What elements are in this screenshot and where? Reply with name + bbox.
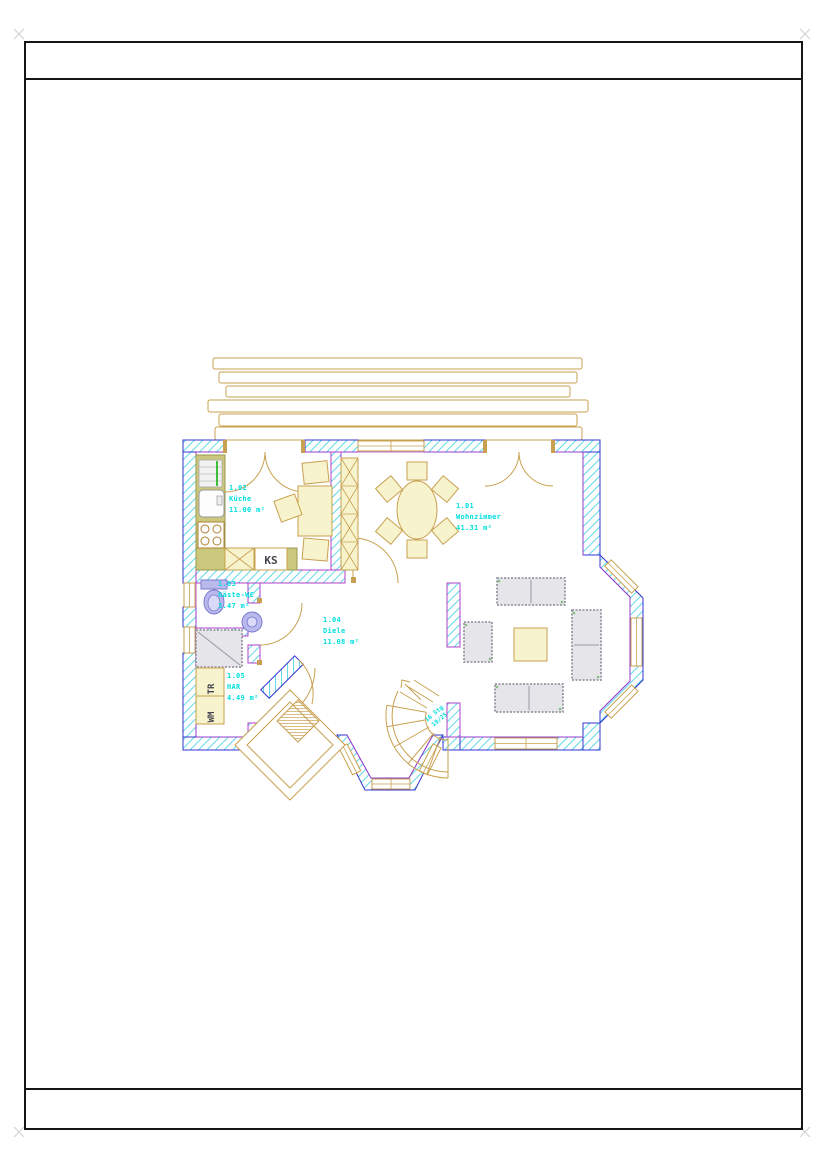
room-label-kueche: 1.02 Küche 11.00 m²	[229, 484, 265, 514]
fridge-box: KS	[255, 548, 287, 570]
tall-cabinet	[341, 458, 358, 570]
svg-text:Wohnzimmer: Wohnzimmer	[456, 513, 501, 521]
shower-icon	[196, 630, 242, 667]
floor-plan-canvas: KS	[165, 350, 655, 820]
svg-text:Gäste-WC: Gäste-WC	[218, 591, 254, 599]
corner-registration-mark	[799, 28, 811, 40]
svg-text:4.49 m²: 4.49 m²	[227, 694, 259, 702]
svg-text:1.01: 1.01	[456, 502, 474, 510]
dryer-box: TR	[196, 668, 224, 696]
svg-text:1.05: 1.05	[227, 672, 245, 680]
window-left-wc	[184, 583, 195, 607]
dryer-label: TR	[207, 683, 217, 694]
staircase: 16 Stg 19/25	[386, 680, 450, 778]
svg-text:11.08 m²: 11.08 m²	[323, 638, 359, 646]
window-bay-right	[631, 618, 642, 666]
laundry-appliances: TR WM	[196, 668, 224, 724]
living-terrace-door-right	[519, 452, 553, 486]
sink-icon	[199, 490, 224, 517]
washer-label: WM	[207, 711, 217, 722]
room-label-diele: 1.04 Diele 11.08 m²	[323, 616, 359, 646]
svg-text:Diele: Diele	[323, 627, 346, 635]
title-strip-bottom	[24, 1090, 803, 1130]
stove-icon	[198, 522, 224, 548]
corner-registration-mark	[13, 28, 25, 40]
drainer-icon	[199, 460, 222, 487]
title-strip-top	[24, 41, 803, 78]
wc-door	[260, 603, 302, 645]
kitchen-hall-door	[353, 538, 398, 583]
coffee-table	[514, 628, 547, 661]
window-left-har	[184, 627, 195, 653]
sofa	[495, 684, 563, 712]
svg-text:11.00 m²: 11.00 m²	[229, 506, 265, 514]
entrance-porch	[235, 690, 345, 800]
svg-text:41.31 m²: 41.31 m²	[456, 524, 492, 532]
dining-table	[397, 481, 437, 539]
fridge-label: KS	[264, 554, 277, 567]
svg-text:1.04: 1.04	[323, 616, 341, 624]
roof-plank-stack	[208, 358, 588, 440]
living-seating-group	[464, 578, 601, 712]
room-label-har: 1.05 HAR 4.49 m²	[227, 672, 259, 702]
svg-text:3.47 m²: 3.47 m²	[218, 602, 250, 610]
svg-text:1.02: 1.02	[229, 484, 247, 492]
dining-group	[376, 462, 459, 558]
svg-text:HAR: HAR	[227, 683, 241, 691]
kitchen-chair	[302, 538, 329, 561]
sofa	[572, 610, 601, 680]
dining-chair	[407, 462, 427, 480]
sofa	[497, 578, 565, 605]
armchair	[464, 622, 492, 662]
svg-text:1.03: 1.03	[218, 580, 236, 588]
living-terrace-door-left	[485, 452, 519, 486]
window-bottom-living	[495, 738, 557, 749]
washer-box: WM	[196, 696, 224, 724]
kitchen-table	[298, 486, 332, 536]
base-cabinet-icon	[225, 548, 254, 570]
dining-chair	[407, 540, 427, 558]
window-stairbay-bottom	[372, 779, 410, 789]
kitchen-chair	[302, 461, 329, 484]
svg-text:Küche: Küche	[229, 495, 252, 503]
drawing-sheet: KS	[0, 0, 826, 1169]
room-label-wohnzimmer: 1.01 Wohnzimmer 41.31 m²	[456, 502, 501, 532]
window-top	[358, 441, 424, 451]
washbasin-icon	[242, 612, 262, 632]
